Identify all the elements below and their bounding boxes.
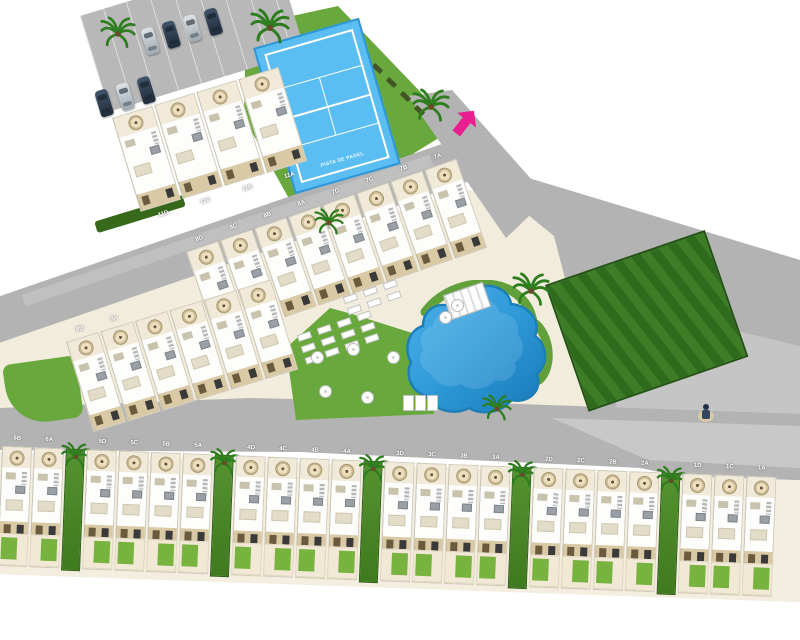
sun-lounger-icon [428, 396, 437, 410]
private-garden [476, 552, 507, 585]
private-garden [178, 540, 209, 573]
roof-terrace [149, 473, 179, 530]
rear-terrace [265, 532, 293, 545]
roof-terrace [234, 476, 264, 533]
unit-label: 3B [460, 453, 468, 459]
sun-lounger-icon [302, 343, 315, 352]
private-garden [444, 551, 475, 584]
roof-terrace [712, 496, 742, 553]
roof-terrace [563, 490, 593, 547]
house-unit-5c: 5C [114, 451, 149, 572]
private-garden [146, 539, 177, 572]
roof-terrace [680, 494, 710, 551]
unit-label: 6A [45, 437, 53, 443]
unit-label: 3A [492, 455, 500, 461]
patio-table-icon [253, 76, 269, 92]
patio-table-icon [127, 456, 141, 470]
patio-table-icon [249, 287, 265, 303]
unit-label: 11D [157, 210, 169, 219]
patio-table-icon [231, 237, 248, 254]
unit-label: 11C [199, 197, 211, 206]
front-yard [87, 450, 116, 472]
car-icon [115, 82, 135, 112]
patio-table-icon [10, 451, 24, 465]
front-yard [268, 458, 297, 480]
house-unit-6b: 6B [0, 446, 32, 567]
private-garden [29, 534, 60, 567]
house-unit-1c: 1C [710, 475, 745, 596]
private-garden [412, 550, 443, 583]
house-unit-5b: 5B [146, 452, 181, 573]
rear-terrace [627, 546, 655, 559]
house-unit-4d: 4D [231, 455, 266, 576]
private-garden [0, 533, 28, 566]
patio-table-icon [265, 225, 282, 242]
umbrella-icon [452, 300, 463, 311]
front-yard [183, 454, 212, 476]
house-unit-4b: 4B [295, 458, 330, 579]
patio-table-icon [42, 452, 56, 466]
unit-label: 1A [758, 465, 766, 471]
patio-table-icon [112, 329, 128, 345]
front-yard [598, 471, 627, 493]
front-yard [683, 474, 712, 496]
house-unit-6a: 6A [29, 447, 64, 568]
house-unit-3d: 3D [380, 461, 415, 582]
unit-label: 6B [13, 435, 21, 441]
patio-table-icon [215, 297, 231, 313]
front-yard [417, 464, 446, 486]
rear-terrace [414, 538, 442, 551]
umbrella-icon [320, 386, 331, 397]
house-unit-3c: 3C [412, 463, 447, 584]
patio-table-icon [211, 89, 227, 105]
rear-terrace [329, 534, 357, 547]
rear-terrace [233, 530, 261, 543]
unit-label: 2C [577, 458, 585, 464]
private-garden [742, 563, 773, 596]
house-unit-5a: 5A [178, 453, 213, 574]
private-garden [678, 560, 709, 593]
hedge-divider [657, 472, 681, 595]
roof-terrace [479, 486, 509, 543]
unit-label: 3D [396, 451, 404, 457]
patio-table-icon [127, 114, 143, 130]
hedge-divider [61, 449, 85, 572]
patio-table-icon [605, 475, 619, 489]
patio-table-icon [197, 249, 214, 266]
sun-lounger-icon [361, 323, 374, 332]
patio-table-icon [573, 473, 587, 487]
house-unit-2d: 2D [529, 467, 564, 588]
patio-table-icon [722, 479, 736, 493]
unit-label: 4D [247, 445, 255, 451]
front-yard [566, 470, 595, 492]
front-yard [34, 448, 63, 470]
site-plan: PISTA DE PADEL 11D11C11B11A 8D8C8B8A7D7C… [0, 0, 800, 640]
roof-terrace [181, 474, 211, 531]
rear-terrace [446, 539, 474, 552]
palm-tree-icon [314, 208, 344, 238]
patio-table-icon [244, 460, 258, 474]
unit-label: 5C [130, 440, 138, 446]
umbrella-icon [312, 352, 323, 363]
roof-terrace [447, 485, 477, 542]
patio-table-icon [95, 454, 109, 468]
front-yard [747, 477, 776, 499]
patio-table-icon [488, 470, 502, 484]
front-yard [449, 465, 478, 487]
private-garden [327, 546, 358, 579]
sun-lounger-icon [416, 396, 425, 410]
unit-label: 4A [343, 449, 351, 455]
front-yard [2, 447, 31, 469]
roof-terrace [330, 480, 360, 537]
rear-terrace [31, 522, 59, 535]
house-unit-4c: 4C [263, 457, 298, 578]
roof-terrace [595, 491, 625, 548]
patio-table-icon [541, 472, 555, 486]
roof-terrace [85, 470, 115, 527]
unit-label: 1C [726, 464, 734, 470]
rear-terrace [180, 528, 208, 541]
patio-table-icon [191, 458, 205, 472]
patio-table-icon [392, 466, 406, 480]
car-icon [182, 13, 202, 43]
private-garden [625, 558, 656, 591]
rear-terrace [84, 524, 112, 537]
patio-table-icon [181, 308, 197, 324]
rear-terrace [382, 536, 410, 549]
patio-table-icon [276, 462, 290, 476]
poolside-loungers [404, 396, 437, 410]
house-unit-2c: 2C [561, 469, 596, 590]
patio-table-icon [754, 481, 768, 495]
unit-label: 5B [162, 441, 170, 447]
patio-table-icon [424, 467, 438, 481]
house-unit-2a: 2A [625, 471, 660, 592]
front-yard [119, 452, 148, 474]
house-unit-4a: 4A [327, 459, 362, 580]
unit-label: 1D [694, 463, 702, 469]
front-yard [534, 468, 563, 490]
hedge-divider [508, 467, 532, 590]
hedge-divider [210, 455, 234, 578]
palm-tree-icon [512, 272, 550, 310]
rear-terrace [744, 551, 772, 564]
roof-terrace [117, 472, 147, 529]
private-garden [710, 562, 741, 595]
front-yard [151, 453, 180, 475]
rear-terrace [478, 540, 506, 553]
roof-terrace [744, 497, 774, 554]
private-garden [114, 538, 145, 571]
patio-table-icon [456, 469, 470, 483]
rear-terrace [595, 545, 623, 558]
house-unit-3b: 3B [444, 464, 479, 585]
front-yard [715, 476, 744, 498]
house-unit-5d: 5D [82, 449, 117, 570]
unit-label: 2D [545, 457, 553, 463]
rear-terrace [297, 533, 325, 546]
house-unit-2b: 2B [593, 470, 628, 591]
front-yard [630, 472, 659, 494]
private-garden [295, 545, 326, 578]
private-garden [380, 548, 411, 581]
rear-terrace [148, 527, 176, 540]
roof-terrace [415, 484, 445, 541]
front-yard [481, 466, 510, 488]
umbrella-icon [440, 312, 451, 323]
patio-table-icon [637, 476, 651, 490]
patio-table-icon [146, 318, 162, 334]
palm-tree-icon [482, 394, 512, 424]
palm-tree-icon [100, 16, 136, 52]
rear-terrace [116, 526, 144, 539]
car-icon [161, 20, 181, 50]
umbrella-icon [362, 392, 373, 403]
car-icon [94, 88, 114, 118]
hedge-divider [359, 461, 383, 584]
front-yard [236, 456, 265, 478]
rear-terrace [563, 544, 591, 557]
rear-terrace [531, 542, 559, 555]
rear-terrace [680, 548, 708, 561]
unit-label: 5A [194, 443, 202, 449]
security-guard-icon [698, 404, 714, 424]
sun-lounger-icon [342, 330, 355, 339]
patio-table-icon [402, 178, 419, 195]
roof-terrace [531, 488, 561, 545]
unit-label: 3C [428, 452, 436, 458]
unit-label: 4C [279, 446, 287, 452]
unit-label: 11B [242, 184, 254, 193]
front-yard [332, 460, 361, 482]
private-garden [593, 557, 624, 590]
front-yard [385, 462, 414, 484]
front-yard [300, 459, 329, 481]
private-garden [231, 542, 262, 575]
roof-terrace [32, 468, 62, 525]
rear-terrace [0, 521, 28, 534]
unit-label: 2A [641, 461, 649, 467]
private-garden [561, 556, 592, 589]
patio-table-icon [159, 457, 173, 471]
rear-terrace [712, 550, 740, 563]
palm-tree-icon [250, 8, 290, 48]
patio-table-icon [436, 167, 453, 184]
roof-terrace [383, 482, 413, 539]
umbrella-icon [348, 344, 359, 355]
palm-tree-icon [412, 88, 450, 126]
patio-table-icon [169, 101, 185, 117]
umbrella-icon [388, 352, 399, 363]
roof-terrace [298, 479, 328, 536]
private-garden [82, 536, 113, 569]
patio-table-icon [77, 339, 93, 355]
roof-terrace [0, 467, 30, 524]
house-unit-1a: 1A [742, 476, 777, 597]
patio-table-icon [340, 464, 354, 478]
sun-lounger-icon [404, 396, 413, 410]
sun-lounger-icon [322, 337, 335, 346]
unit-label: 2B [609, 459, 617, 465]
patio-table-icon [368, 190, 385, 207]
private-garden [263, 544, 294, 577]
roof-terrace [627, 492, 657, 549]
house-unit-3a: 3A [476, 465, 511, 586]
house-unit-1d: 1D [678, 473, 713, 594]
unit-label: 5D [98, 439, 106, 445]
private-garden [529, 554, 560, 587]
patio-table-icon [308, 463, 322, 477]
roof-terrace [266, 478, 296, 535]
patio-table-icon [690, 478, 704, 492]
unit-label: 4B [311, 447, 319, 453]
